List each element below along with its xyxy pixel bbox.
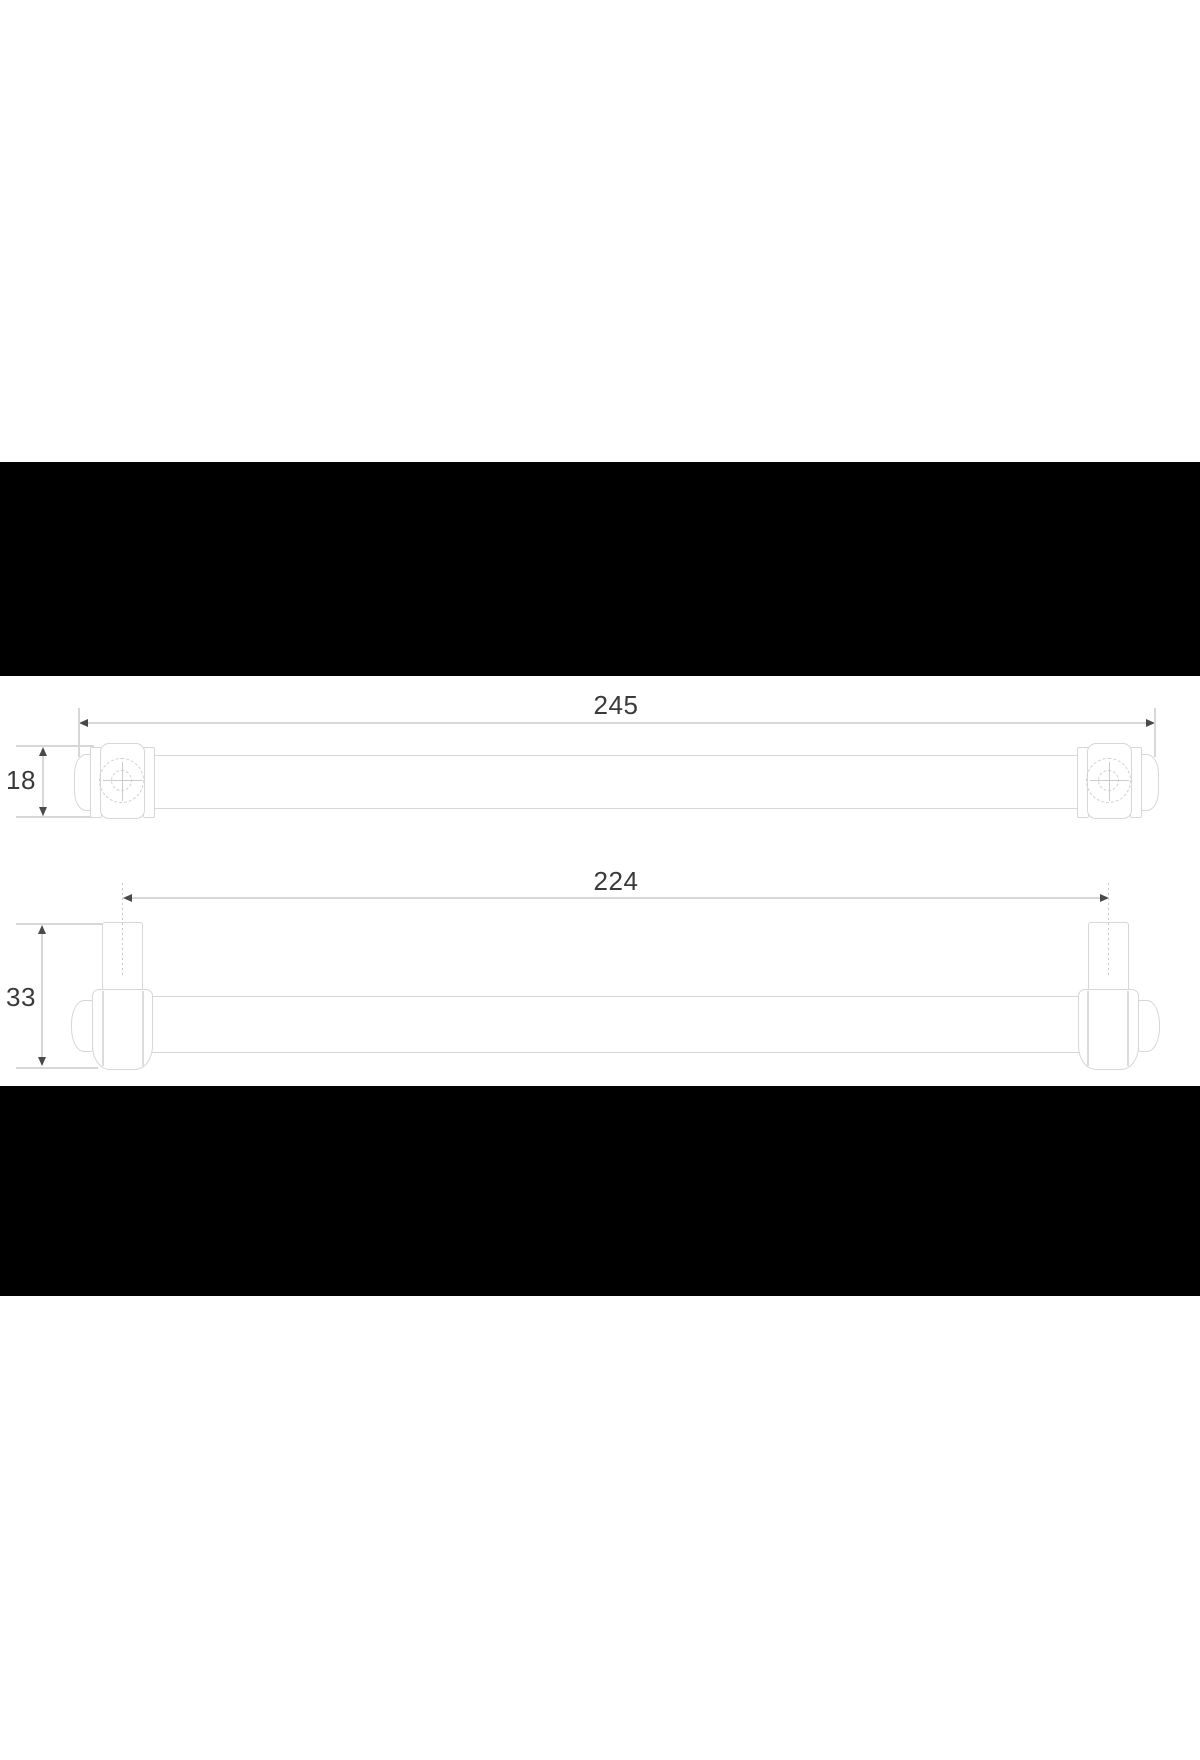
dim-arrow-down-icon	[38, 1057, 46, 1066]
dim-label-total-height: 33	[2, 983, 40, 1011]
dim-arrow-down-icon	[39, 807, 47, 816]
extension-line-left	[78, 708, 80, 757]
extension-line-bottom	[16, 816, 94, 818]
end-cap-left-flange-line	[142, 991, 144, 1066]
end-knob-right	[1139, 754, 1159, 811]
handle-bar-top	[152, 996, 1080, 1053]
dim-line-overall-length	[86, 722, 1148, 724]
dim-line-total-height	[41, 929, 43, 1065]
dim-label-overall-length: 245	[562, 691, 670, 719]
dim-arrow-up-icon	[39, 747, 47, 756]
dim-arrow-up-icon	[38, 925, 46, 934]
crosshair-v-icon	[122, 762, 123, 801]
drawing-sheet: 245 18 224	[0, 0, 1200, 1760]
centerline-right-icon	[1108, 883, 1109, 977]
bottom-letterbox-band	[0, 1086, 1200, 1296]
centerline-left-icon	[122, 883, 123, 977]
end-cap-left-flange-line	[102, 991, 104, 1066]
dim-line-hole-centers	[131, 897, 1101, 899]
end-knob-right	[1138, 1000, 1160, 1052]
top-letterbox-band	[0, 462, 1200, 676]
dim-label-hole-centers: 224	[562, 867, 670, 895]
extension-line-bottom	[16, 1067, 98, 1069]
end-knob-left	[71, 1000, 93, 1052]
end-cap-right-flange-line	[1127, 991, 1129, 1066]
crosshair-v-icon	[1109, 762, 1110, 801]
extension-line-right	[1154, 708, 1156, 757]
handle-bar-front	[152, 755, 1080, 809]
dim-arrow-left-icon	[79, 719, 88, 727]
extension-line-top	[16, 923, 102, 925]
end-cap-right-flange-line	[1087, 991, 1089, 1066]
extension-line-top	[16, 745, 94, 747]
dim-arrow-left-icon	[123, 894, 132, 902]
dim-label-end-height: 18	[2, 766, 40, 794]
